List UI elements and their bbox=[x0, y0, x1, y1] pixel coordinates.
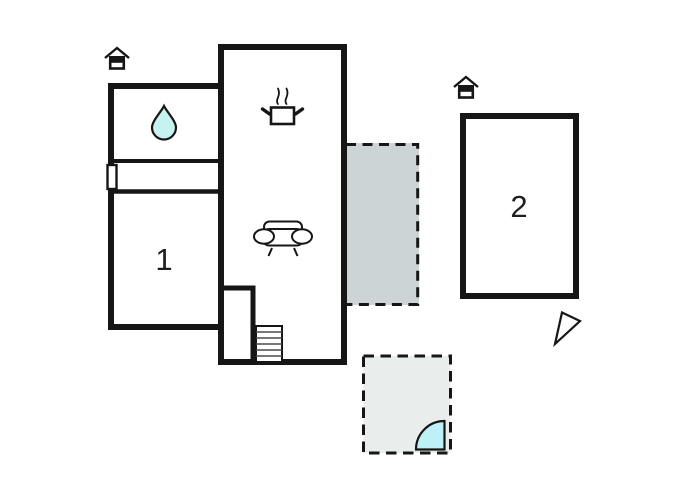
house-entrance-icon bbox=[454, 77, 478, 98]
window-icon bbox=[108, 165, 117, 189]
house-entrance-icon bbox=[105, 48, 129, 69]
north-arrow-icon bbox=[555, 313, 580, 345]
building-walls bbox=[108, 47, 577, 362]
floor-plan: 1 2 bbox=[0, 0, 700, 500]
terrace-area bbox=[346, 143, 419, 305]
central-section-walls bbox=[221, 47, 344, 362]
room-1-label: 1 bbox=[155, 242, 172, 277]
terrace-fill bbox=[346, 143, 419, 305]
stairs-icon bbox=[256, 326, 282, 362]
patio-area bbox=[364, 356, 451, 453]
room-2-label: 2 bbox=[510, 189, 527, 224]
